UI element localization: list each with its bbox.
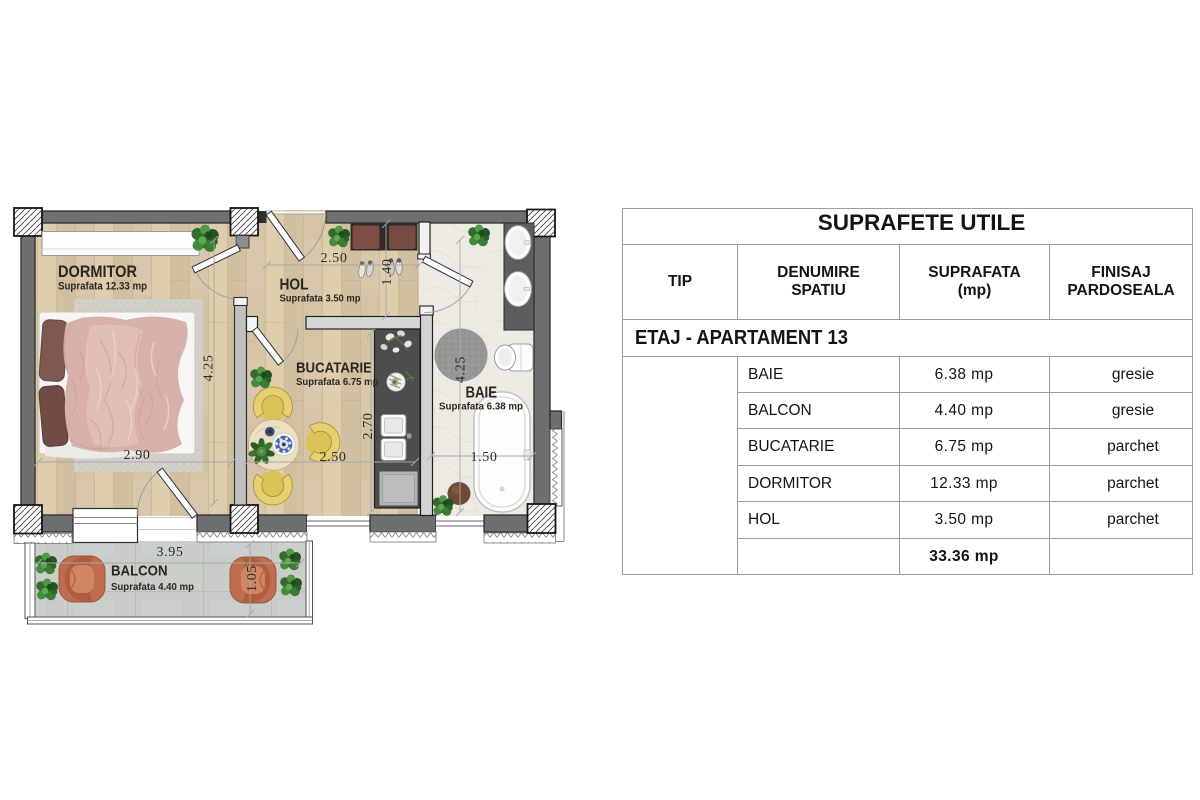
svg-text:1.50: 1.50	[471, 450, 498, 465]
svg-text:Suprafata 6.38 mp: Suprafata 6.38 mp	[439, 402, 523, 413]
svg-text:Suprafata 4.40 mp: Suprafata 4.40 mp	[111, 582, 194, 593]
svg-text:2.50: 2.50	[321, 251, 348, 266]
svg-text:1.40: 1.40	[380, 259, 395, 286]
svg-text:Suprafata 6.75 mp: Suprafata 6.75 mp	[296, 377, 379, 388]
svg-text:3.95: 3.95	[157, 545, 184, 560]
svg-text:4.25: 4.25	[454, 356, 469, 383]
svg-text:Suprafata 12.33 mp: Suprafata 12.33 mp	[58, 281, 147, 293]
svg-text:1.05: 1.05	[245, 565, 260, 592]
svg-text:BUCATARIE: BUCATARIE	[296, 360, 372, 377]
svg-text:DORMITOR: DORMITOR	[58, 262, 137, 281]
svg-text:Suprafata 3.50 mp: Suprafata 3.50 mp	[280, 294, 361, 305]
svg-text:HOL: HOL	[280, 277, 309, 294]
svg-text:4.25: 4.25	[202, 355, 217, 382]
svg-text:2.50: 2.50	[320, 450, 347, 465]
svg-text:BAIE: BAIE	[466, 385, 498, 402]
svg-text:BALCON: BALCON	[111, 563, 168, 580]
svg-text:2.70: 2.70	[361, 413, 376, 440]
svg-text:2.90: 2.90	[124, 448, 151, 463]
